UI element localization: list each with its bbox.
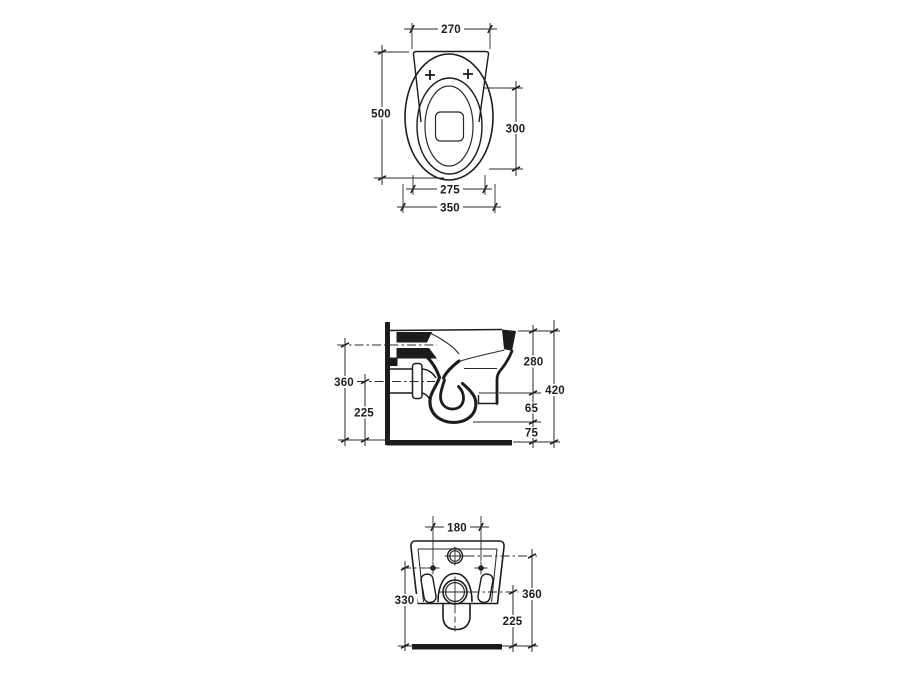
dim-label-500: 500: [371, 109, 391, 121]
trap-inner-wall: [441, 380, 464, 409]
bowl-interior-back-line: [431, 334, 459, 355]
dim-label-75: 75: [525, 428, 539, 440]
dim-label-330: 330: [395, 595, 415, 607]
trap-outer-wall: [430, 378, 476, 423]
funnel-right-wall: [444, 361, 460, 378]
foot-bottom-edge: [479, 395, 498, 404]
dim-label-225-side: 225: [354, 408, 374, 420]
dim-label-420: 420: [545, 385, 565, 397]
front-profile: [497, 351, 512, 404]
flush-channel-lower-section: [397, 348, 438, 359]
technical-drawing-canvas: 270 500 300 275 350: [0, 0, 923, 692]
bowl-interior-front-line: [460, 350, 505, 362]
sump-outline: [436, 112, 464, 141]
pan-top-surface: [390, 330, 502, 331]
bowl-opening-oval: [425, 86, 473, 166]
floor-section: [387, 440, 512, 446]
rear-inner-panel: [418, 549, 497, 602]
front-rim-section: [502, 330, 516, 352]
dim-label-350: 350: [440, 203, 460, 215]
dim-label-300: 300: [506, 124, 526, 136]
rear-floor-section: [412, 644, 502, 650]
wc-dimension-drawing: 270 500 300 275 350: [0, 0, 923, 692]
top-view: 270 500 300 275 350: [369, 23, 530, 215]
dim-label-65: 65: [525, 403, 539, 415]
outlet-stub: [422, 369, 436, 399]
side-view: 360 225 280 420 65 75: [331, 320, 569, 448]
flush-channel-upper-section: [397, 332, 433, 343]
dim-label-225-rear: 225: [503, 616, 523, 628]
seat-fixing-mark-left: [425, 70, 435, 80]
dim-label-360-rear: 360: [522, 589, 542, 601]
dim-label-270: 270: [441, 24, 461, 36]
dim-label-275: 275: [440, 185, 460, 197]
dim-label-180: 180: [447, 523, 467, 535]
dim-label-360-side: 360: [334, 377, 354, 389]
wall-section: [385, 322, 390, 445]
outlet-pipe-below: [443, 604, 470, 630]
rear-view: 180 330: [392, 516, 546, 652]
bowl-rim-oval: [417, 78, 482, 174]
outlet-pipe-walls: [390, 369, 413, 393]
outlet-flange: [413, 364, 423, 399]
seat-fixing-mark-right: [463, 69, 473, 79]
wall-fixing-block: [390, 358, 398, 367]
dim-label-280: 280: [524, 357, 544, 369]
